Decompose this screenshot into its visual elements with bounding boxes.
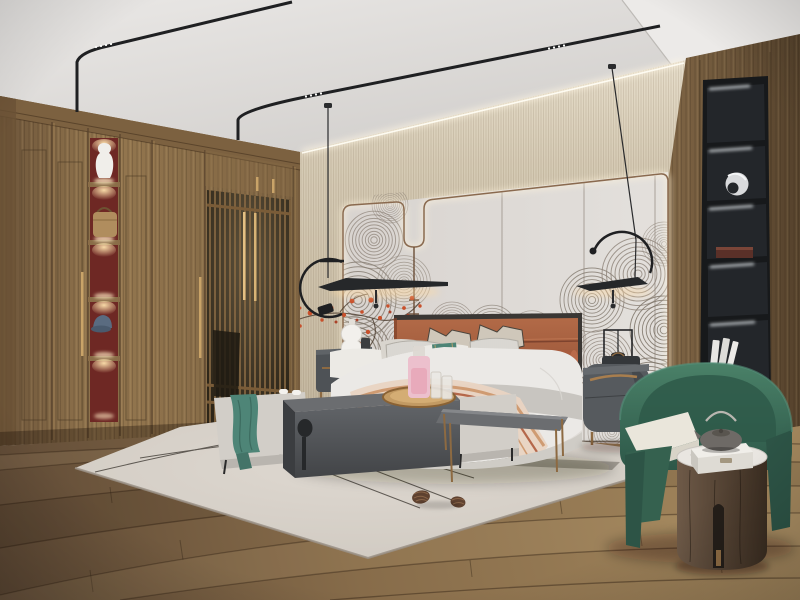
vignette [0,0,800,600]
scene-canvas: Photorealistic 3D render of a modern Chi… [0,0,800,600]
bedroom-render: Photorealistic 3D render of a modern Chi… [0,0,800,600]
